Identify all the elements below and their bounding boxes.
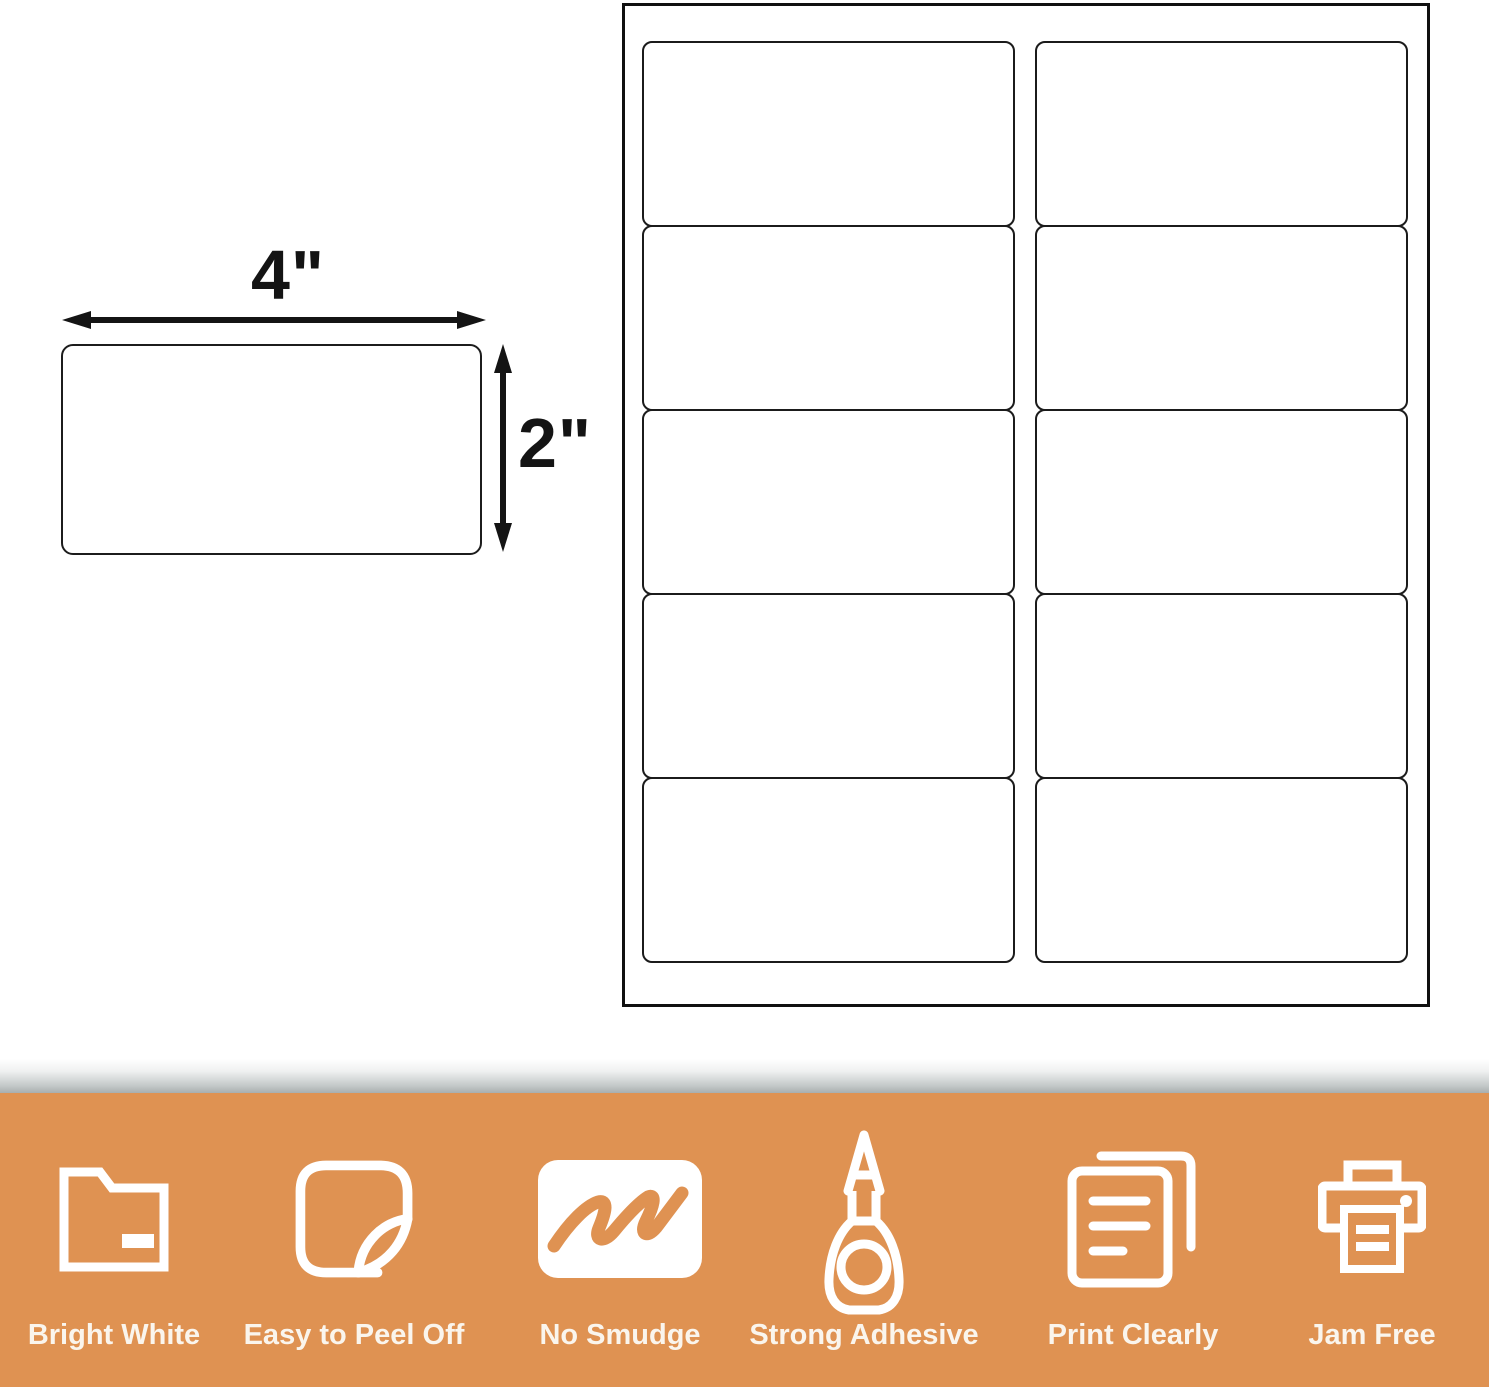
peel-sticker-icon — [294, 1120, 414, 1318]
feature-no-smudge: No Smudge — [500, 1120, 740, 1360]
feature-easy-peel: Easy to Peel Off — [234, 1120, 474, 1360]
glue-bottle-icon — [815, 1120, 913, 1318]
label-cell — [1035, 409, 1408, 595]
label-column-right — [1035, 41, 1408, 963]
label-cell — [642, 409, 1015, 595]
feature-bright-white: Bright White — [0, 1120, 234, 1360]
label-cell — [1035, 41, 1408, 227]
features-banner: Bright White Easy to Peel Off No Smudge — [0, 1093, 1489, 1387]
label-cell — [642, 225, 1015, 411]
documents-icon — [1065, 1120, 1201, 1318]
label-cell — [642, 41, 1015, 227]
horizontal-dimension-arrow — [60, 309, 488, 331]
vertical-dimension-arrow — [492, 342, 514, 554]
feature-label: Print Clearly — [1048, 1320, 1219, 1350]
feature-label: Strong Adhesive — [749, 1320, 978, 1350]
label-cell — [1035, 593, 1408, 779]
feature-jam-free: Jam Free — [1252, 1120, 1492, 1360]
feature-print-clearly: Print Clearly — [1013, 1120, 1253, 1360]
single-label-outline — [61, 344, 482, 555]
printer-icon — [1318, 1120, 1426, 1318]
feature-label: Jam Free — [1308, 1320, 1435, 1350]
width-dimension-label: 4" — [188, 240, 388, 310]
feature-label: Bright White — [28, 1320, 200, 1350]
label-sheet — [622, 3, 1430, 1007]
label-cell — [642, 593, 1015, 779]
height-dimension-label: 2" — [518, 408, 638, 478]
label-cell — [1035, 225, 1408, 411]
folder-icon — [58, 1120, 170, 1318]
marker-scribble-icon — [538, 1120, 702, 1318]
feature-label: Easy to Peel Off — [244, 1320, 465, 1350]
feature-strong-adhesive: Strong Adhesive — [744, 1120, 984, 1360]
feature-label: No Smudge — [539, 1320, 700, 1350]
label-cell — [642, 777, 1015, 963]
label-cell — [1035, 777, 1408, 963]
banner-top-shadow — [0, 1059, 1489, 1093]
label-column-left — [642, 41, 1015, 963]
